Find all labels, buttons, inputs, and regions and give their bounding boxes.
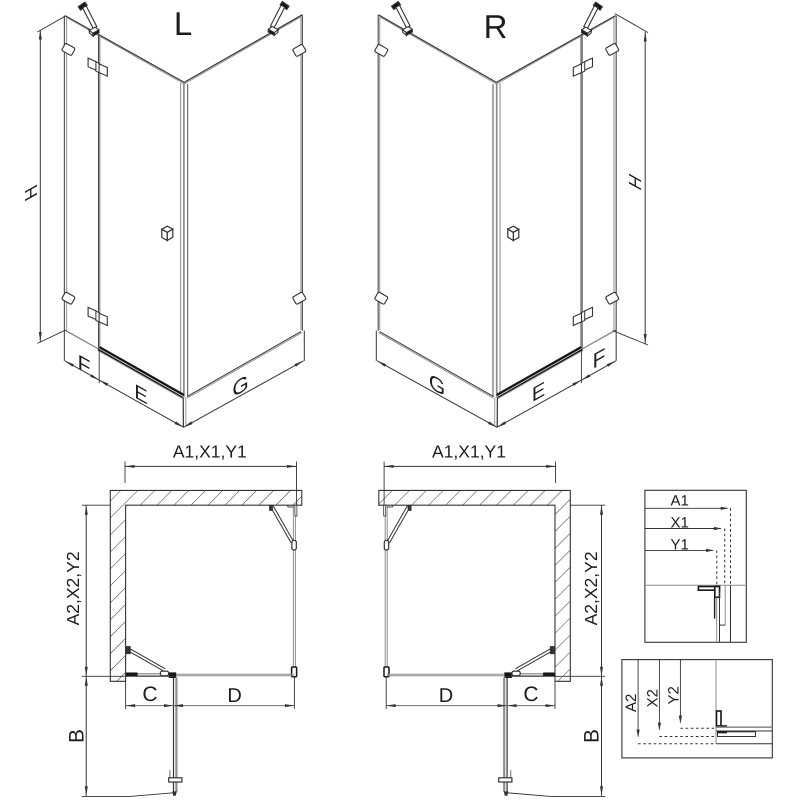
- svg-text:A2,X2,Y2: A2,X2,Y2: [63, 551, 83, 625]
- svg-text:C: C: [523, 683, 538, 706]
- svg-text:Y2: Y2: [665, 686, 682, 704]
- svg-text:B: B: [581, 729, 604, 743]
- svg-text:L: L: [174, 5, 192, 42]
- svg-text:A2: A2: [623, 694, 640, 712]
- svg-text:A1,X1,Y1: A1,X1,Y1: [432, 442, 506, 462]
- svg-text:C: C: [142, 683, 157, 706]
- svg-text:A1: A1: [671, 492, 689, 509]
- svg-text:A2,X2,Y2: A2,X2,Y2: [581, 551, 601, 625]
- svg-text:X1: X1: [671, 515, 689, 532]
- svg-text:A1,X1,Y1: A1,X1,Y1: [173, 442, 247, 462]
- svg-text:B: B: [66, 729, 89, 743]
- svg-text:D: D: [439, 685, 453, 707]
- svg-text:R: R: [484, 8, 508, 45]
- svg-text:X2: X2: [644, 689, 661, 707]
- svg-text:D: D: [227, 685, 241, 707]
